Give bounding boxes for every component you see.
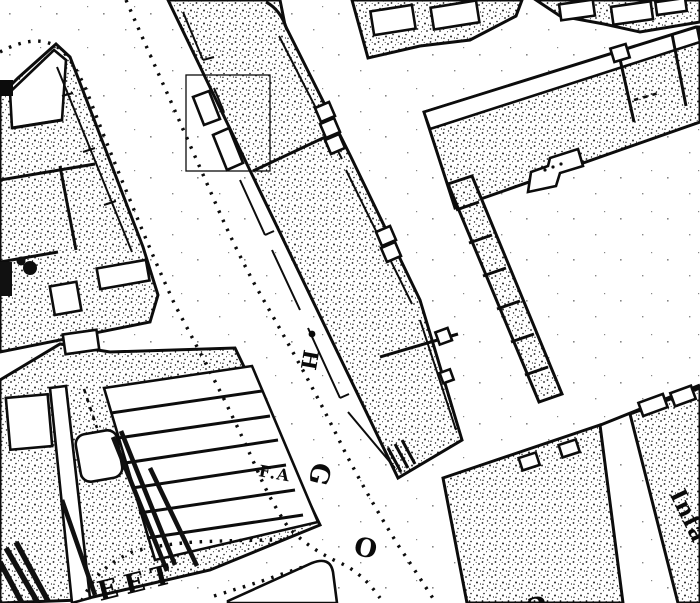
ink-blob: [0, 80, 13, 96]
building-room: [50, 282, 82, 315]
map-canvas: H F.A G O EET Infa a: [0, 0, 700, 603]
boundary-point-dot: [309, 331, 316, 338]
map-svg: H F.A G O EET Infa a: [0, 0, 700, 603]
ink-blob: [0, 262, 12, 296]
